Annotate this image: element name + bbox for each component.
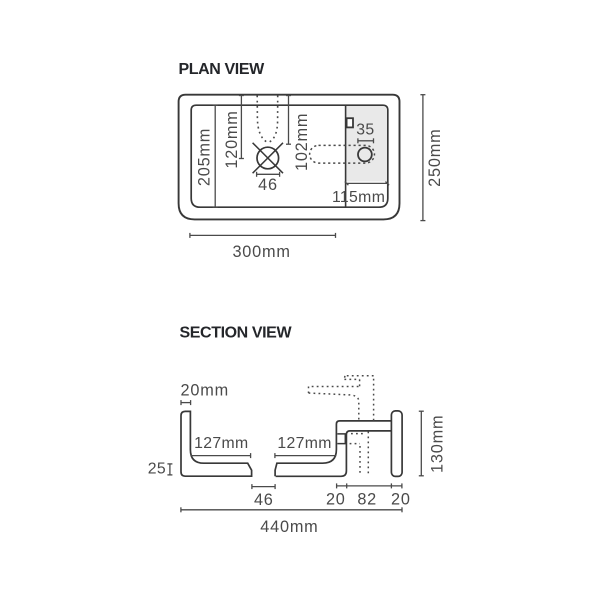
svg-text:115mm: 115mm (332, 189, 385, 206)
svg-text:127mm: 127mm (277, 435, 331, 452)
svg-text:82: 82 (357, 491, 377, 509)
svg-text:20: 20 (326, 491, 346, 509)
svg-text:440mm: 440mm (260, 518, 318, 536)
svg-text:130mm: 130mm (428, 415, 446, 473)
svg-text:20mm: 20mm (181, 381, 229, 399)
svg-text:46: 46 (254, 491, 274, 509)
svg-text:127mm: 127mm (194, 435, 248, 452)
svg-text:PLAN VIEW: PLAN VIEW (179, 61, 266, 78)
svg-text:120mm: 120mm (223, 110, 241, 168)
svg-text:SECTION VIEW: SECTION VIEW (180, 325, 293, 342)
svg-text:35: 35 (356, 122, 374, 139)
svg-text:250mm: 250mm (426, 129, 444, 187)
svg-text:102mm: 102mm (293, 113, 311, 171)
svg-text:300mm: 300mm (232, 243, 290, 261)
svg-text:20: 20 (391, 491, 411, 509)
svg-text:205mm: 205mm (195, 128, 213, 186)
svg-text:25: 25 (148, 461, 166, 478)
svg-text:46: 46 (258, 176, 278, 194)
